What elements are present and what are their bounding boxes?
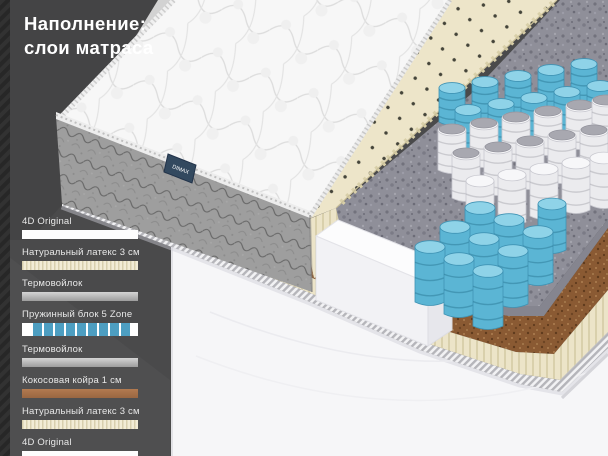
layer-label: Кокосовая койра 1 см: [22, 375, 142, 386]
layer-legend: 4D Original Натуральный латекс 3 см Терм…: [22, 216, 142, 456]
layer-swatch: [22, 323, 138, 336]
layer-label: Натуральный латекс 3 см: [22, 406, 142, 417]
infographic-title: Наполнение: слои матраса: [24, 12, 154, 61]
layer-label: Термовойлок: [22, 344, 142, 355]
layer-swatch: [22, 261, 138, 270]
layer-swatch: [22, 389, 138, 398]
layer-legend-item: 4D Original: [22, 216, 142, 239]
title-line-2: слои матраса: [24, 36, 154, 60]
layer-swatch: [22, 230, 138, 239]
layer-swatch: [22, 451, 138, 456]
layer-label: Пружинный блок 5 Zone: [22, 309, 142, 320]
layer-legend-item: Натуральный латекс 3 см: [22, 247, 142, 270]
layer-legend-item: Натуральный латекс 3 см: [22, 406, 142, 429]
layer-label: 4D Original: [22, 437, 142, 448]
layer-label: Натуральный латекс 3 см: [22, 247, 142, 258]
layer-label: Термовойлок: [22, 278, 142, 289]
layer-swatch: [22, 358, 138, 367]
layer-legend-item: Пружинный блок 5 Zone: [22, 309, 142, 336]
layer-legend-item: Термовойлок: [22, 344, 142, 367]
layer-legend-item: Термовойлок: [22, 278, 142, 301]
layer-legend-item: 4D Original: [22, 437, 142, 456]
left-edge-strip: [0, 0, 10, 456]
layer-swatch: [22, 420, 138, 429]
layer-label: 4D Original: [22, 216, 142, 227]
title-line-1: Наполнение:: [24, 12, 154, 36]
infographic-canvas: DIMAX Наполнение: слои матраса 4D Origin…: [0, 0, 608, 456]
layer-swatch: [22, 292, 138, 301]
layer-legend-item: Кокосовая койра 1 см: [22, 375, 142, 398]
